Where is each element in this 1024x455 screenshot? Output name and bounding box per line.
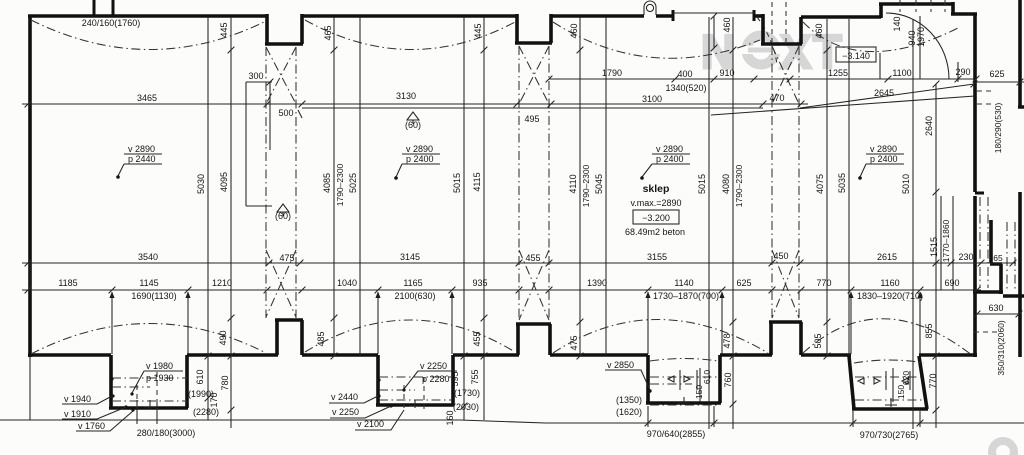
svg-text:p 2280: p 2280 — [422, 374, 450, 384]
svg-text:610: 610 — [702, 370, 712, 384]
svg-text:p 2440: p 2440 — [128, 154, 156, 164]
svg-text:5035: 5035 — [837, 173, 847, 193]
svg-text:240/160(1760): 240/160(1760) — [82, 18, 141, 28]
svg-text:610: 610 — [195, 369, 205, 384]
svg-text:1165: 1165 — [403, 278, 422, 288]
svg-text:4085: 4085 — [322, 173, 332, 193]
svg-text:1790–2300: 1790–2300 — [335, 163, 345, 206]
svg-text:68.49m2 beton: 68.49m2 beton — [625, 227, 685, 237]
svg-text:4075: 4075 — [815, 174, 825, 194]
svg-text:595: 595 — [450, 371, 460, 386]
svg-text:690: 690 — [944, 278, 959, 288]
svg-text:4095: 4095 — [219, 172, 229, 192]
svg-text:300: 300 — [248, 71, 263, 81]
svg-text:v 2250: v 2250 — [332, 407, 359, 417]
svg-text:855: 855 — [924, 323, 934, 338]
svg-text:770: 770 — [928, 373, 938, 388]
svg-text:(60): (60) — [405, 120, 421, 130]
svg-text:445: 445 — [219, 22, 229, 37]
svg-text:465: 465 — [323, 25, 333, 40]
svg-text:v.max.=2890: v.max.=2890 — [630, 198, 681, 208]
svg-text:970/640(2855): 970/640(2855) — [647, 429, 706, 439]
svg-text:770: 770 — [816, 278, 831, 288]
svg-text:3100: 3100 — [642, 94, 662, 104]
svg-text:760: 760 — [723, 372, 733, 387]
svg-text:180/290(530): 180/290(530) — [993, 103, 1003, 154]
svg-text:1040: 1040 — [337, 278, 357, 288]
svg-text:1255: 1255 — [828, 68, 848, 78]
svg-text:625: 625 — [989, 69, 1004, 79]
svg-text:1790–2300: 1790–2300 — [734, 164, 744, 207]
svg-text:3540: 3540 — [138, 252, 158, 262]
svg-text:1185: 1185 — [58, 278, 77, 288]
svg-text:490: 490 — [218, 330, 228, 345]
svg-text:630: 630 — [988, 303, 1003, 313]
svg-text:p 2400: p 2400 — [406, 154, 434, 164]
svg-text:v 2890: v 2890 — [406, 144, 433, 154]
svg-text:505: 505 — [813, 333, 823, 348]
svg-text:2100(630): 2100(630) — [394, 291, 435, 301]
svg-text:v 2440: v 2440 — [331, 392, 358, 402]
svg-text:1140: 1140 — [674, 278, 693, 288]
svg-text:150: 150 — [896, 385, 906, 399]
svg-text:620: 620 — [901, 371, 911, 385]
svg-text:1690(1130): 1690(1130) — [131, 291, 176, 301]
svg-text:X: X — [780, 25, 811, 78]
svg-text:(1620): (1620) — [616, 407, 642, 417]
svg-text:460: 460 — [722, 17, 732, 32]
svg-text:1160: 1160 — [880, 278, 899, 288]
svg-text:5015: 5015 — [452, 173, 462, 193]
svg-text:5010: 5010 — [901, 174, 911, 194]
svg-text:625: 625 — [736, 278, 751, 288]
svg-text:v 2250: v 2250 — [420, 361, 447, 371]
svg-text:935: 935 — [472, 278, 487, 288]
svg-text:v 1980: v 1980 — [146, 361, 173, 371]
svg-text:65: 65 — [993, 253, 1003, 263]
svg-text:400: 400 — [677, 69, 692, 79]
svg-text:460: 460 — [814, 23, 824, 38]
svg-text:455: 455 — [525, 253, 540, 263]
svg-text:5030: 5030 — [196, 174, 206, 194]
svg-text:v 2890: v 2890 — [128, 144, 155, 154]
svg-text:1770–1860: 1770–1860 — [941, 219, 951, 262]
svg-text:230: 230 — [958, 252, 973, 262]
svg-text:500: 500 — [278, 108, 293, 118]
svg-text:−3.200: −3.200 — [642, 213, 670, 223]
svg-text:(1730): (1730) — [454, 388, 480, 398]
svg-text:p 2400: p 2400 — [656, 154, 684, 164]
svg-text:910: 910 — [719, 68, 734, 78]
svg-text:1790–2300: 1790–2300 — [581, 164, 591, 207]
svg-text:v 2100: v 2100 — [357, 419, 384, 429]
svg-text:2615: 2615 — [877, 252, 897, 262]
svg-text:495: 495 — [524, 114, 539, 124]
svg-text:1830–1920(710): 1830–1920(710) — [857, 291, 923, 301]
svg-text:v 1760: v 1760 — [78, 421, 105, 431]
svg-text:2645: 2645 — [874, 88, 894, 98]
svg-text:(1350): (1350) — [616, 395, 642, 405]
svg-text:(60): (60) — [275, 211, 291, 221]
svg-text:280/180(3000): 280/180(3000) — [137, 428, 196, 438]
svg-text:755: 755 — [470, 369, 480, 384]
svg-text:140: 140 — [892, 16, 902, 31]
svg-text:160: 160 — [445, 410, 455, 425]
svg-text:350/310(2060): 350/310(2060) — [996, 320, 1006, 375]
svg-text:460: 460 — [569, 23, 579, 38]
svg-text:1515: 1515 — [929, 237, 939, 257]
svg-text:485: 485 — [316, 331, 326, 346]
svg-text:4080: 4080 — [721, 174, 731, 194]
svg-text:445: 445 — [473, 23, 483, 38]
svg-text:3465: 3465 — [137, 93, 157, 103]
svg-text:5045: 5045 — [594, 174, 604, 194]
svg-text:p 1930: p 1930 — [146, 373, 174, 383]
svg-text:450: 450 — [773, 251, 788, 261]
svg-text:v 1910: v 1910 — [64, 409, 91, 419]
svg-text:v 1940: v 1940 — [64, 394, 91, 404]
svg-text:1100: 1100 — [892, 68, 911, 78]
svg-text:150: 150 — [694, 385, 704, 399]
svg-text:780: 780 — [220, 375, 230, 390]
svg-text:5025: 5025 — [348, 173, 358, 193]
svg-text:455: 455 — [472, 331, 482, 346]
svg-text:3145: 3145 — [400, 252, 420, 262]
svg-text:1390: 1390 — [587, 278, 607, 288]
svg-text:475: 475 — [279, 253, 294, 263]
svg-text:1970: 1970 — [916, 27, 926, 47]
svg-text:475: 475 — [569, 335, 579, 350]
svg-text:1730–1870(700): 1730–1870(700) — [653, 291, 719, 301]
svg-text:3130: 3130 — [396, 91, 416, 101]
svg-text:v 2890: v 2890 — [656, 144, 683, 154]
svg-text:3155: 3155 — [647, 252, 667, 262]
svg-text:v 2890: v 2890 — [870, 144, 897, 154]
svg-text:478: 478 — [722, 333, 732, 348]
svg-text:2640: 2640 — [924, 116, 934, 136]
svg-text:290: 290 — [955, 67, 970, 77]
svg-text:5015: 5015 — [697, 174, 707, 194]
svg-text:p 2400: p 2400 — [870, 154, 898, 164]
svg-text:(2030): (2030) — [453, 402, 479, 412]
svg-text:−3.140: −3.140 — [842, 51, 870, 61]
svg-text:1145: 1145 — [139, 278, 158, 288]
svg-text:1210: 1210 — [212, 278, 232, 288]
svg-text:sklep: sklep — [643, 183, 670, 195]
svg-text:470: 470 — [769, 93, 784, 103]
svg-text:4110: 4110 — [568, 174, 578, 193]
svg-text:1790: 1790 — [602, 68, 622, 78]
svg-text:970/730(2765): 970/730(2765) — [860, 430, 919, 440]
svg-text:v 2850: v 2850 — [607, 360, 634, 370]
svg-text:1340(520): 1340(520) — [665, 83, 706, 93]
svg-text:4115: 4115 — [472, 172, 482, 191]
svg-text:170: 170 — [209, 392, 219, 407]
